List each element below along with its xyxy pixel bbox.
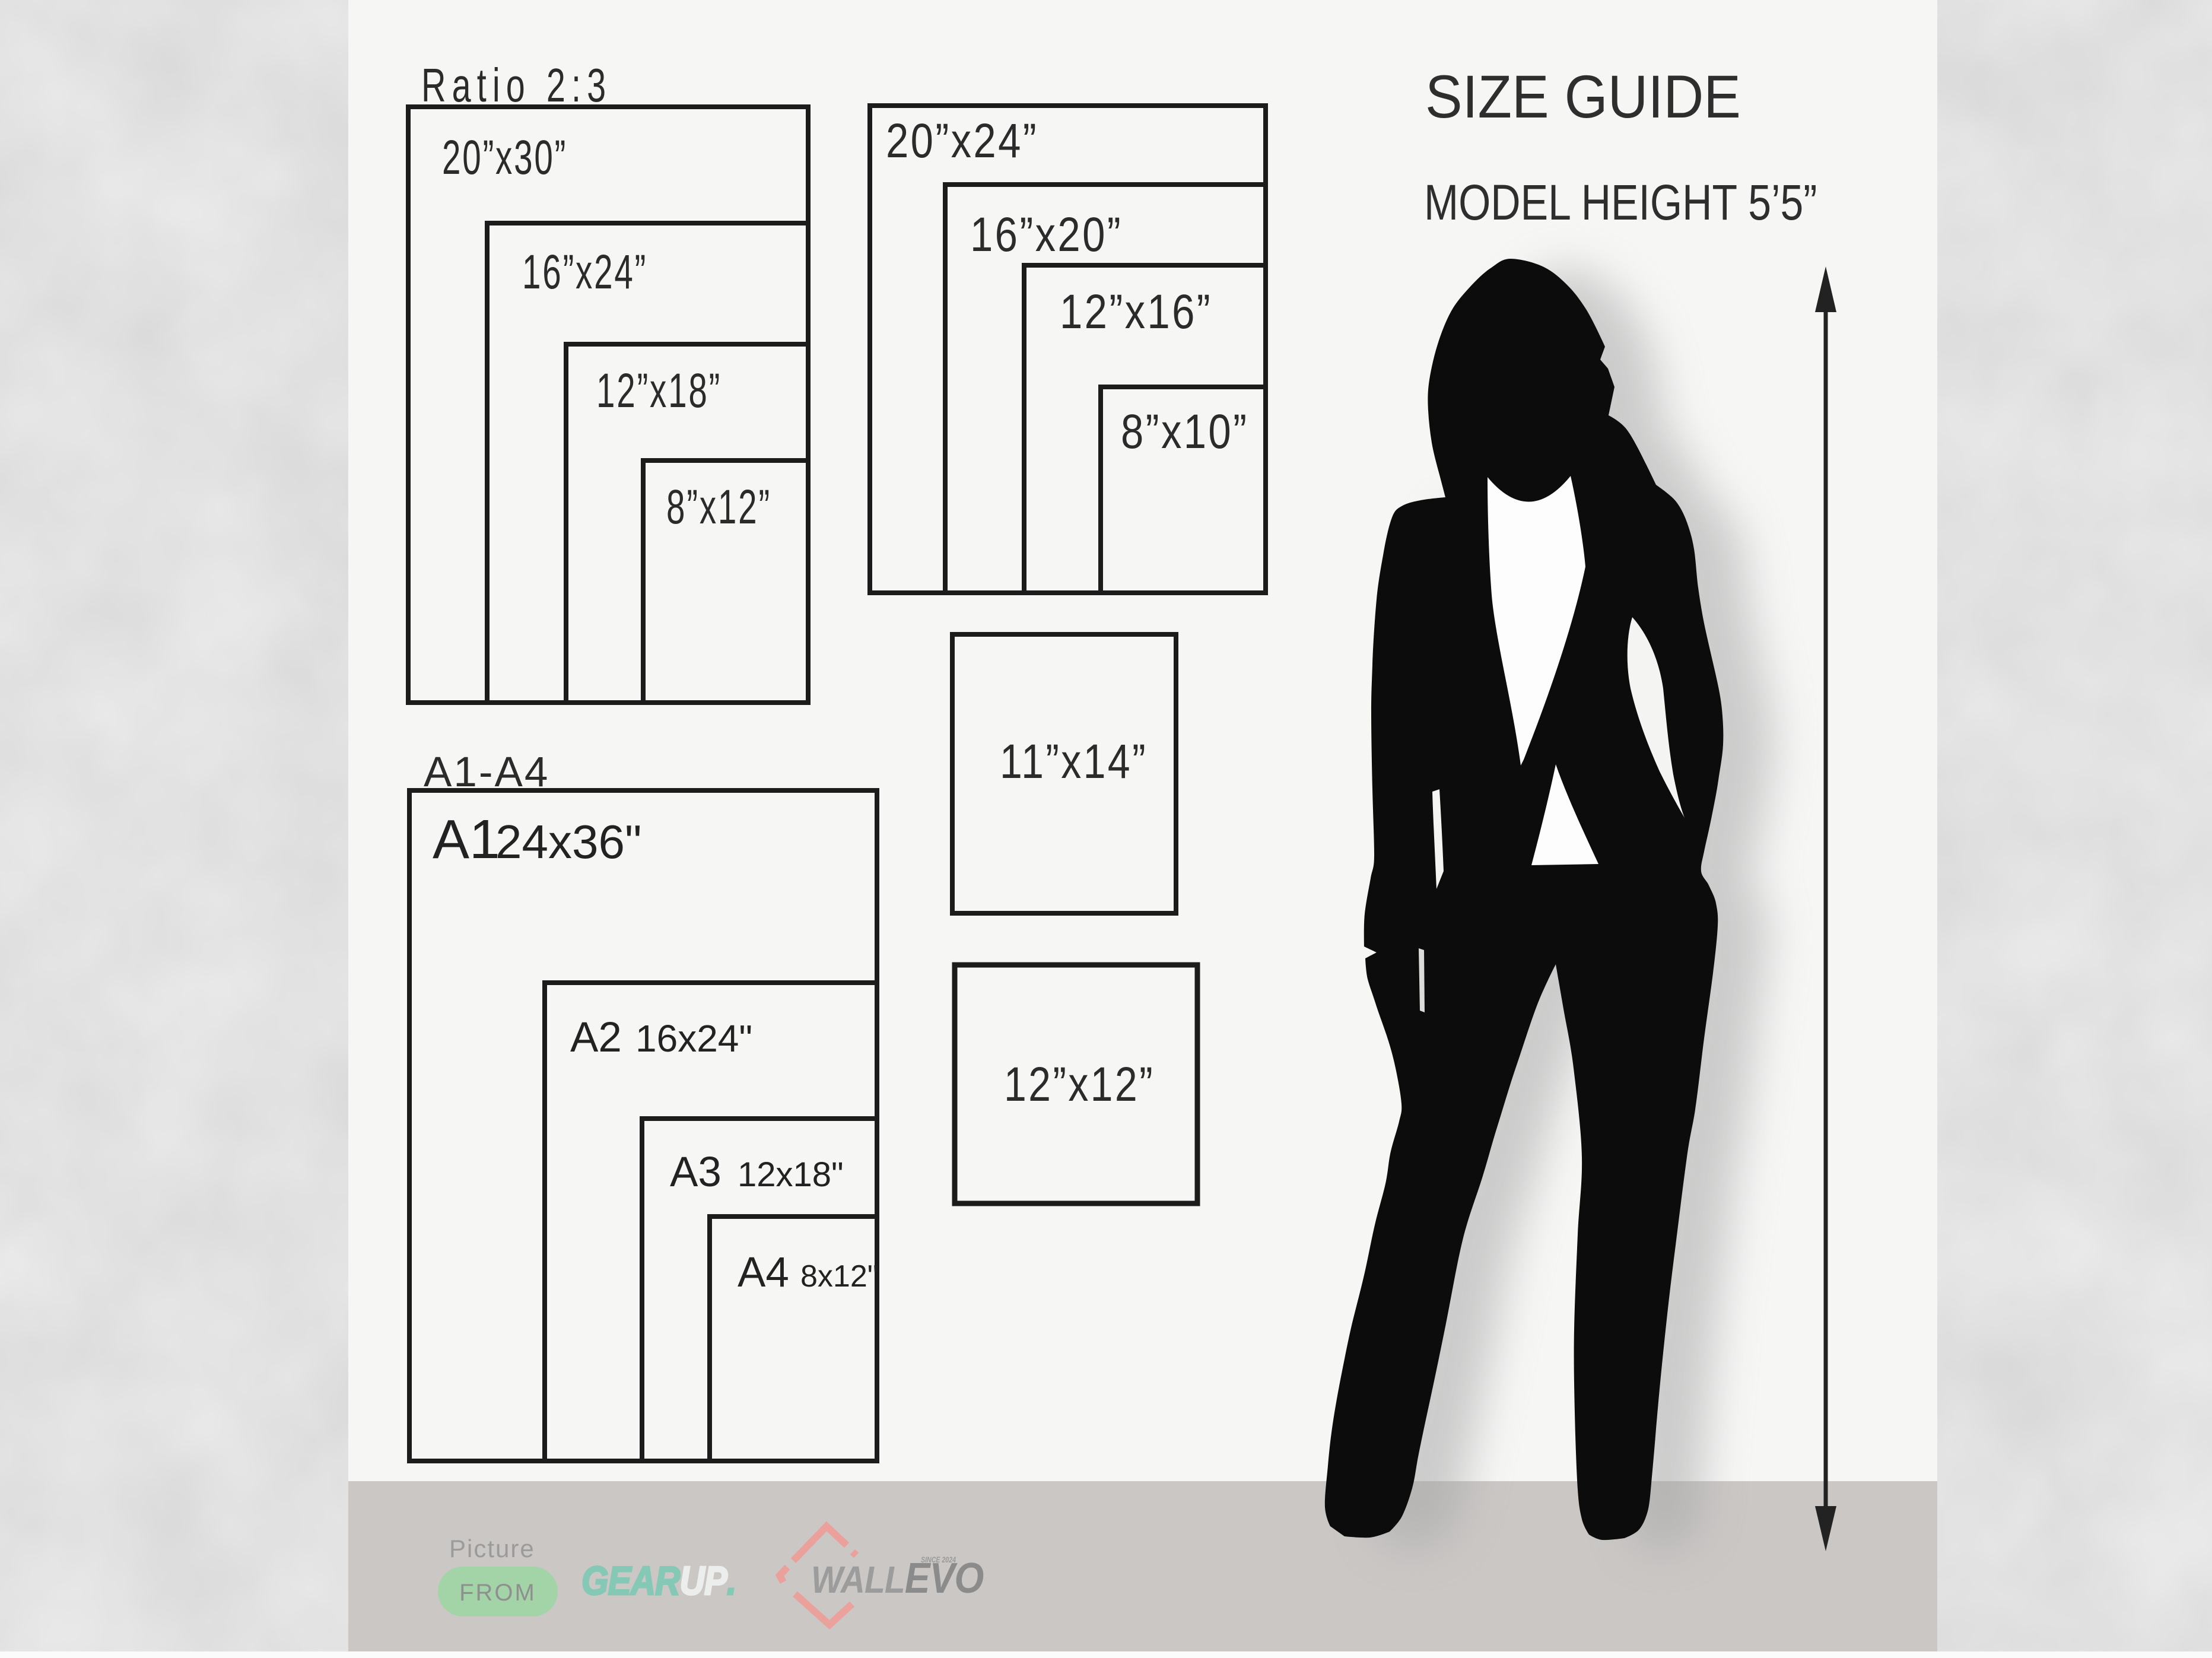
- svg-text:A1: A1: [433, 808, 500, 870]
- svg-text:GEARUP.: GEARUP.: [581, 1559, 736, 1603]
- svg-text:SINCE 2024: SINCE 2024: [921, 1555, 956, 1564]
- svg-text:WALLEVO: WALLEVO: [811, 1555, 983, 1602]
- svg-text:SIZE GUIDE: SIZE GUIDE: [1425, 62, 1741, 130]
- svg-text:11”x14”: 11”x14”: [1000, 734, 1148, 788]
- svg-text:A2: A2: [570, 1014, 622, 1061]
- svg-text:A4: A4: [738, 1249, 789, 1296]
- svg-text:8”x10”: 8”x10”: [1121, 404, 1248, 459]
- svg-text:12”x16”: 12”x16”: [1060, 284, 1212, 339]
- svg-text:12”x12”: 12”x12”: [1004, 1057, 1155, 1111]
- svg-text:Picture: Picture: [449, 1535, 535, 1562]
- svg-text:A3: A3: [670, 1149, 722, 1196]
- svg-text:16”x20”: 16”x20”: [970, 207, 1123, 262]
- svg-text:8x12": 8x12": [800, 1259, 878, 1294]
- svg-text:12x18": 12x18": [738, 1155, 844, 1194]
- svg-text:20”x24”: 20”x24”: [886, 113, 1038, 168]
- svg-text:20”x30”: 20”x30”: [442, 130, 567, 185]
- svg-text:MODEL HEIGHT 5’5”: MODEL HEIGHT 5’5”: [1424, 175, 1817, 231]
- svg-text:FROM: FROM: [459, 1580, 536, 1606]
- svg-text:16”x24”: 16”x24”: [522, 244, 647, 299]
- svg-text:Ratio 2:3: Ratio 2:3: [421, 59, 612, 112]
- svg-text:24x36": 24x36": [495, 815, 641, 868]
- svg-text:16x24": 16x24": [635, 1017, 752, 1060]
- svg-text:12”x18”: 12”x18”: [596, 363, 722, 418]
- svg-text:8”x12”: 8”x12”: [666, 479, 771, 534]
